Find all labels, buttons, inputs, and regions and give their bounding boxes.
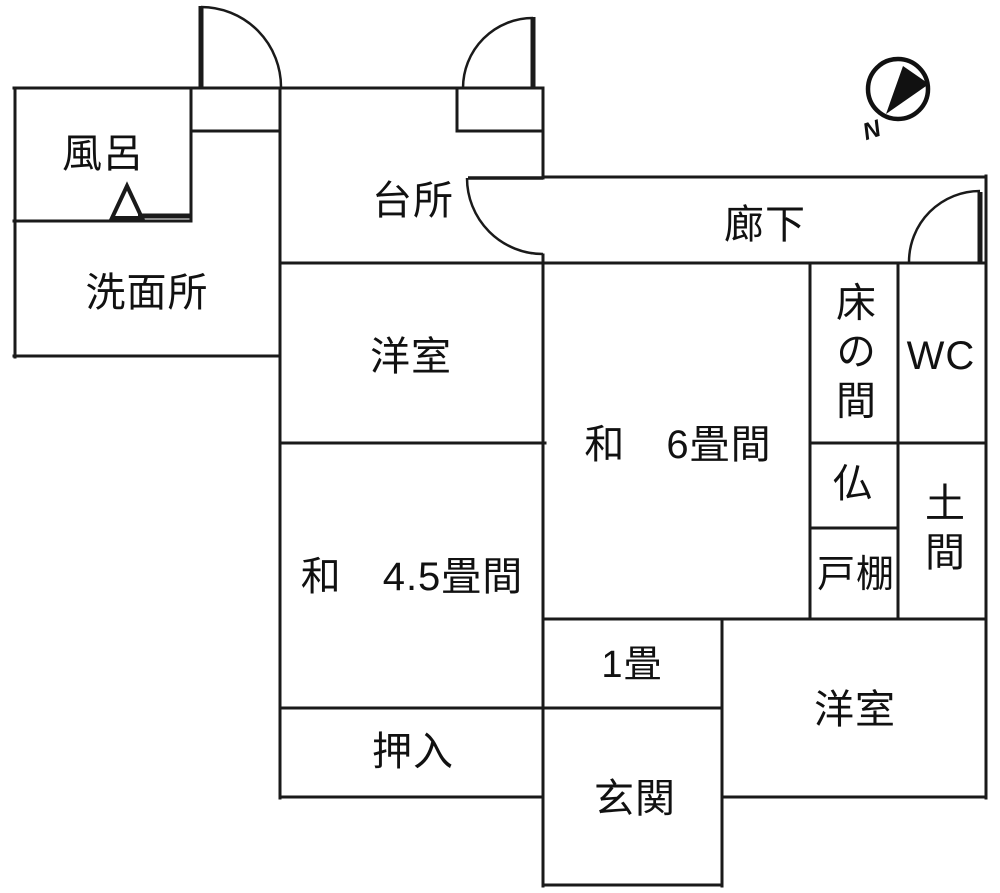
- room-label-corridor: 廊下: [724, 204, 806, 246]
- floorplan-page: N 風呂 洗面所 台所 廊下 洋室 和 6畳間 床の間 WC 仏 土間 戸棚 和…: [0, 0, 1000, 893]
- room-label-japanese-4-5-tatami: 和 4.5畳間: [301, 556, 524, 598]
- room-label-bath: 風呂: [62, 133, 144, 175]
- room-label-western-room-lower: 洋室: [814, 689, 896, 731]
- door-arc-kitchen-top: [463, 18, 533, 88]
- room-label-entrance: 玄関: [594, 778, 676, 820]
- room-label-japanese-6-tatami: 和 6畳間: [584, 424, 771, 466]
- room-label-kitchen: 台所: [372, 180, 454, 222]
- bath-triangle-icon: [112, 186, 142, 218]
- compass-icon: N: [859, 59, 929, 146]
- door-arc-top-left: [201, 7, 281, 88]
- floorplan-drawing: N: [0, 0, 1000, 893]
- room-label-cupboard: 戸棚: [817, 556, 895, 596]
- door-arc-kitchen-corridor: [467, 178, 543, 254]
- room-label-tokonoma: 床の間: [831, 282, 873, 429]
- room-label-butsudan: 仏: [833, 463, 874, 505]
- room-label-doma: 土間: [920, 482, 962, 580]
- room-label-wc: WC: [907, 335, 976, 377]
- room-label-western-room-upper: 洋室: [370, 336, 452, 378]
- room-label-one-tatami: 1畳: [601, 646, 662, 686]
- compass-n-label: N: [859, 115, 884, 146]
- room-label-washroom: 洗面所: [86, 272, 209, 314]
- room-label-closet: 押入: [372, 731, 454, 773]
- door-arc-corridor-right: [909, 191, 980, 262]
